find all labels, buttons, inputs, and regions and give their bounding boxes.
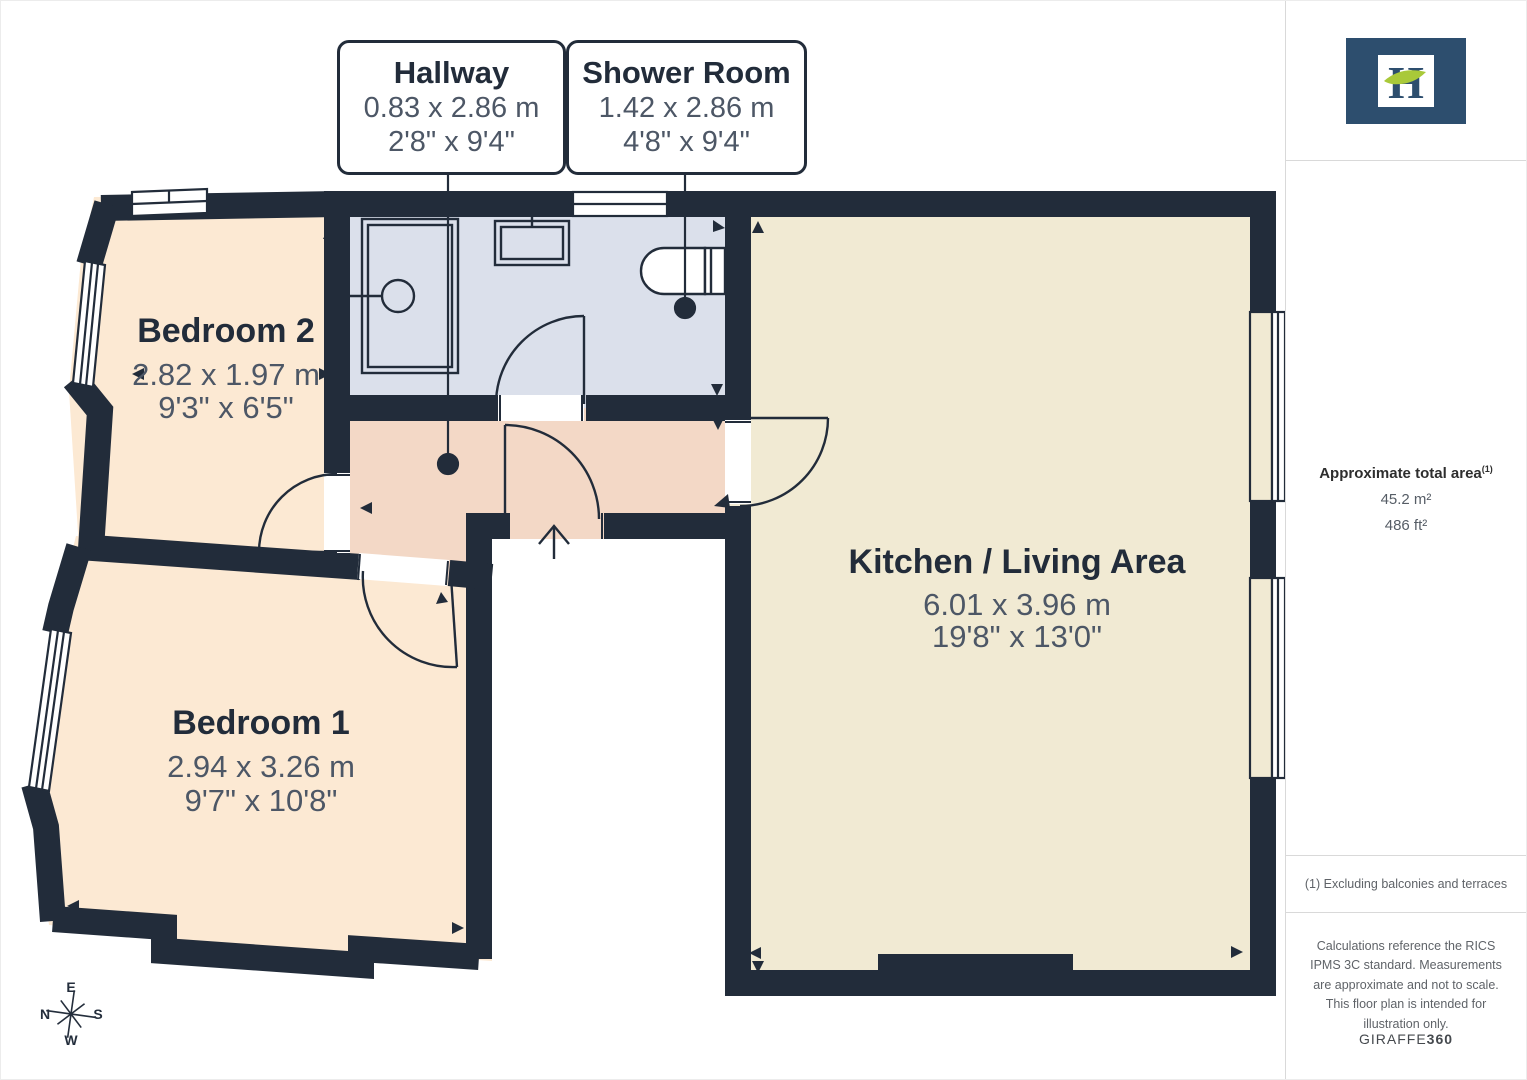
callout-hallway-metric: 0.83 x 2.86 m: [364, 91, 540, 125]
kitchen-window-1: [1250, 312, 1285, 501]
brand-logo: H: [1346, 38, 1466, 124]
bedroom2-door-threshold: [324, 473, 350, 553]
compass-rose: E N S W: [40, 979, 103, 1048]
disclaimer-text: Calculations reference the RICS IPMS 3C …: [1304, 937, 1508, 1034]
callout-shower-room: Shower Room 1.42 x 2.86 m 4'8" x 9'4": [566, 40, 807, 175]
kitchen-window-2: [1250, 578, 1285, 778]
leader-dot-shower: [675, 298, 695, 318]
kitchen-metric: 6.01 x 3.96 m: [923, 587, 1111, 622]
bedroom1-label: Bedroom 1 2.94 x 3.26 m 9'7" x 10'8": [167, 704, 355, 818]
callout-shower-metric: 1.42 x 2.86 m: [599, 91, 775, 125]
kitchen-door-threshold: [725, 420, 751, 504]
brand-name: GIRAFFE: [1359, 1031, 1427, 1047]
bedroom1-name: Bedroom 1: [172, 704, 350, 742]
area-value-imperial: 486 ft²: [1286, 517, 1526, 534]
leader-dot-hallway: [438, 454, 458, 474]
area-section: Approximate total area(1) 45.2 m² 486 ft…: [1286, 161, 1526, 856]
info-sidebar: H Approximate total area(1) 45.2 m² 486 …: [1285, 1, 1526, 1080]
floorplan-page: Bedroom 2 2.82 x 1.97 m 9'3" x 6'5" Bedr…: [0, 0, 1527, 1080]
hallway-floor: [337, 395, 751, 583]
shower-room-window: [573, 192, 667, 216]
compass-diagonal-2: [57, 1000, 84, 1027]
compass-west-label: W: [64, 1032, 78, 1048]
callout-hallway: Hallway 0.83 x 2.86 m 2'8" x 9'4": [337, 40, 566, 175]
bedroom2-name: Bedroom 2: [137, 312, 315, 350]
bedroom2-imperial: 9'3" x 6'5": [158, 390, 294, 425]
callout-shower-title: Shower Room: [582, 55, 790, 91]
giraffe360-brand: GIRAFFE360: [1286, 1031, 1526, 1047]
bedroom1-imperial: 9'7" x 10'8": [185, 783, 338, 818]
callout-hallway-imperial: 2'8" x 9'4": [388, 125, 515, 159]
callout-hallway-title: Hallway: [394, 55, 509, 91]
toilet: [641, 248, 725, 294]
area-value-metric: 45.2 m²: [1286, 491, 1526, 508]
compass-south-label: S: [93, 1006, 102, 1022]
shower-door-threshold: [498, 395, 584, 421]
kitchen-chimney-breast: [878, 954, 1073, 978]
compass-north-label: N: [40, 1006, 50, 1022]
footnote-section: (1) Excluding balconies and terraces: [1286, 856, 1526, 913]
toilet-cistern: [705, 248, 725, 294]
logo-section: H: [1286, 1, 1526, 161]
bedroom2-metric: 2.82 x 1.97 m: [132, 357, 320, 392]
brand-360: 360: [1427, 1031, 1453, 1047]
kitchen-imperial: 19'8" x 13'0": [932, 619, 1102, 654]
bedroom2-label: Bedroom 2 2.82 x 1.97 m 9'3" x 6'5": [132, 312, 320, 425]
kitchen-name: Kitchen / Living Area: [849, 543, 1187, 581]
legal-section: Calculations reference the RICS IPMS 3C …: [1286, 913, 1526, 1080]
area-heading-text: Approximate total area: [1319, 465, 1482, 482]
area-heading: Approximate total area(1): [1286, 464, 1526, 482]
callout-shower-imperial: 4'8" x 9'4": [623, 125, 750, 159]
bedroom1-metric: 2.94 x 3.26 m: [167, 749, 355, 784]
area-heading-marker: (1): [1482, 464, 1493, 474]
bedroom2-top-window: [132, 189, 207, 216]
footnote-text: (1) Excluding balconies and terraces: [1305, 877, 1507, 891]
compass-east-label: E: [66, 979, 75, 995]
